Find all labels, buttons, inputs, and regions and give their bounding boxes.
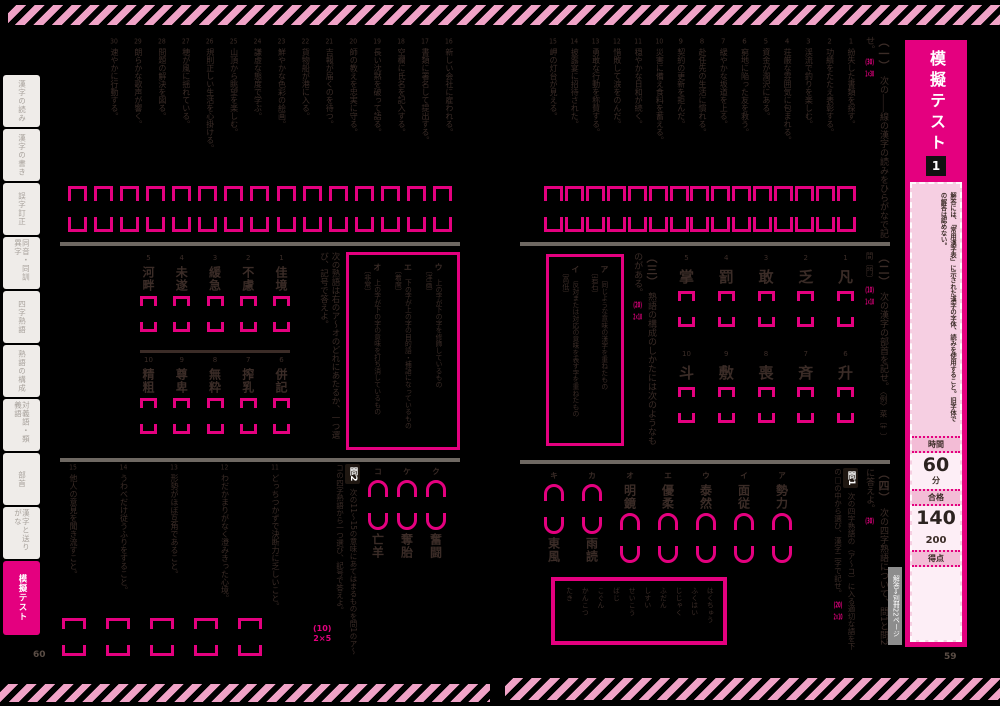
radical-cell: 9敷 — [718, 350, 735, 423]
question-column: 13勇敢な行動を称賛する。 — [587, 38, 601, 180]
question-column: 19長い沈黙を破って語る。 — [368, 38, 382, 180]
pass-total: 200 — [926, 535, 947, 546]
idiom-answer-box — [368, 480, 388, 530]
question-column: 25山頂から眺望を楽しむ。 — [225, 38, 239, 180]
question-column: 23鮮やかな色彩の絵画。 — [272, 38, 286, 180]
question-number: 1 — [843, 254, 847, 262]
section-score: (20) — [633, 301, 642, 309]
section-4-hint-box: はくちゅうふくはいじじゃくふだんしすいせいこうばじこぐんかんこつたき — [551, 577, 727, 645]
radical-kanji: 斉 — [798, 362, 813, 383]
time-number: 60 — [923, 454, 949, 476]
question-number: 12 — [613, 38, 621, 45]
question-text: 規則正しい生活を心掛ける。 — [206, 48, 215, 152]
idiom-answer-box — [426, 480, 446, 530]
hint-word: ふくはい — [689, 587, 699, 616]
left-page: 16新しい会社に雇われる。17書類に署名して提出する。18空欄に氏名を記入する。… — [60, 36, 460, 660]
section-score: (10) — [865, 286, 874, 294]
idiom-column: エ優柔 — [658, 470, 678, 570]
score-line: (10) — [313, 624, 331, 633]
question-number: 28 — [158, 38, 166, 45]
answer-box — [106, 618, 130, 656]
question-number: 3 — [213, 254, 217, 262]
compound-word: 併記 — [273, 368, 290, 394]
idiom-column: ク奮闘 — [426, 466, 446, 566]
answer-box — [407, 186, 426, 232]
question-column: 3渓流で釣りを楽しむ。 — [799, 38, 813, 180]
sidebar-tab-label: 熟語の構成 — [18, 350, 26, 393]
question-number: 9 — [180, 356, 184, 364]
question-text: 山頂から眺望を楽しむ。 — [230, 48, 239, 136]
radical-cell: 5掌 — [678, 254, 695, 327]
radical-cell: 2乏 — [797, 254, 814, 327]
page-number-right: 59 — [944, 652, 957, 662]
question-number: 10 — [655, 38, 663, 45]
q1-score: (20) — [834, 601, 843, 609]
section-1-answer-row — [544, 186, 856, 232]
question-column: 11穏やかな日和が続く。 — [629, 38, 643, 180]
radical-cell: 7斉 — [797, 350, 814, 423]
question-column: 26規則正しい生活を心掛ける。 — [201, 38, 215, 180]
hint-word: かんこつ — [579, 587, 589, 616]
sidebar-tab-label: 部首 — [18, 471, 26, 488]
question-number: 25 — [230, 38, 238, 45]
answer-box — [120, 186, 139, 232]
answer-box — [303, 186, 322, 232]
question-text: 速やかに行動する。 — [110, 48, 119, 120]
answer-box — [670, 186, 689, 232]
sidebar-tab-label: 同音・同訓異字 — [14, 239, 30, 287]
question-number: 13 — [592, 38, 600, 45]
hint-word: こぐん — [595, 587, 605, 609]
idiom-key: イ — [740, 470, 748, 481]
section-1-questions-continued: 16新しい会社に雇われる。17書類に署名して提出する。18空欄に氏名を記入する。… — [105, 38, 454, 180]
section-score: (30) — [865, 58, 874, 66]
option-column: エ 下の字が上の字の目的語・補語になっているもの〔着席〕 — [394, 263, 413, 439]
pass-number: 140 — [916, 507, 956, 529]
answer-box — [837, 186, 856, 232]
idiom-given: 雨読 — [584, 537, 601, 563]
idiom-column: ケ奪胎 — [397, 466, 417, 566]
question-number: 4 — [783, 38, 791, 45]
question-text: 災害に備え食料を蓄える。 — [655, 48, 664, 144]
question-number: 6 — [279, 356, 283, 364]
sidebar-tab: 同音・同訓異字 — [3, 237, 40, 289]
answer-box — [173, 398, 190, 434]
radical-cell: 1凡 — [837, 254, 854, 327]
section-4-idioms-h-j: ク奮闘ケ奪胎コ亡羊 — [368, 466, 446, 566]
question-number: 8 — [698, 38, 706, 45]
question-column: 2功績をたたえ表彰する。 — [821, 38, 835, 180]
section-score-per: 1×30 — [865, 70, 874, 78]
answer-box — [381, 186, 400, 232]
question-column: 21吉報が届くのを待つ。 — [320, 38, 334, 180]
answer-box — [628, 186, 647, 232]
question-text: 勇敢な行動を称賛する。 — [592, 48, 601, 136]
hint-word: せいこう — [626, 587, 636, 616]
section-instruction: 次の漢字の部首を記せ。 — [878, 292, 888, 391]
answer-box — [68, 186, 87, 232]
option-key: ア — [600, 265, 609, 281]
answer-box — [273, 296, 290, 332]
section-4-q2-answer-row — [62, 618, 262, 656]
question-text: 形勢がほぼ互角であること。 — [170, 474, 179, 578]
idiom-given: 勢力 — [774, 484, 791, 510]
idiom-given: 奪胎 — [399, 533, 416, 559]
section-divider — [520, 242, 890, 246]
sidebar-tab: 対義語・類義語 — [3, 399, 40, 451]
question-column: 10災害に備え食料を蓄える。 — [650, 38, 664, 180]
compound-word-cell: 10精粗 — [140, 356, 157, 434]
time-value: 60 分 — [912, 453, 960, 489]
question-number: 21 — [325, 38, 333, 45]
answer-box — [207, 398, 224, 434]
question-number: 16 — [445, 38, 453, 45]
section-2-row-2: 6升7斉8喪9敷10斗 — [678, 350, 854, 423]
question-number: 9 — [677, 38, 685, 45]
question-column: 4荘厳な雰囲気に包まれる。 — [778, 38, 792, 180]
idiom-answer-box — [772, 513, 792, 563]
answer-box — [837, 387, 854, 423]
compound-word: 佳境 — [273, 266, 290, 292]
question-number: 27 — [182, 38, 190, 45]
compound-word: 河畔 — [140, 266, 157, 292]
question-number: 4 — [180, 254, 184, 262]
question-text: 惜敗して涙をのんだ。 — [613, 48, 622, 128]
answer-box — [711, 186, 730, 232]
section-score-per: 2×10 — [633, 313, 642, 321]
question-column: 11どっちつかずで決断力に乏しいこと。 — [266, 464, 280, 614]
question-number: 12 — [221, 464, 229, 471]
answer-box — [774, 186, 793, 232]
radical-cell: 3敢 — [758, 254, 775, 327]
pass-value: 140 200 — [912, 506, 960, 550]
answer-box — [250, 186, 269, 232]
idiom-given: 亡羊 — [370, 533, 387, 559]
section-4-header: （四）次の四字熟語について、問1と問2に答えよ。(30) — [862, 468, 890, 652]
radical-kanji: 升 — [838, 362, 853, 383]
score-entry-space — [912, 567, 960, 640]
radical-cell: 10斗 — [678, 350, 695, 423]
sidebar-tab: 漢字の読み — [3, 75, 40, 127]
answer-box — [140, 398, 157, 434]
idiom-given: 東風 — [546, 537, 563, 563]
compound-word: 不慮 — [240, 266, 257, 292]
question-column: 12惜敗して涙をのんだ。 — [608, 38, 622, 180]
question-number: 7 — [804, 350, 808, 358]
option-key: エ — [403, 263, 412, 279]
question-column: 8赴任先の生活に慣れる。 — [693, 38, 707, 180]
answer-box — [198, 186, 217, 232]
sidebar-tab: 熟語の構成 — [3, 345, 40, 397]
answer-box — [678, 387, 695, 423]
question-column: 20師の教えを忠実に守る。 — [344, 38, 358, 180]
question-column: 15岬の灯台が見える。 — [544, 38, 558, 180]
question-column: 16新しい会社に雇われる。 — [440, 38, 454, 180]
hint-word: じじゃく — [673, 587, 683, 616]
answer-box — [329, 186, 348, 232]
q1-score-per: 2×10 — [834, 613, 843, 621]
question-number: 29 — [134, 38, 142, 45]
answer-box — [150, 618, 174, 656]
sidebar-index-tabs: 漢字の読み漢字の書き誤字訂正同音・同訓異字四字熟語熟語の構成対義語・類義語部首漢… — [3, 75, 40, 637]
option-example: 〔非常〕 — [363, 267, 372, 439]
section-2-row-1: 1凡2乏3敢4罰5掌 — [678, 254, 854, 327]
compound-word-cell: 9尊卑 — [173, 356, 190, 434]
question-column: 12わだかまりがなく澄みきった心境。 — [216, 464, 230, 614]
idiom-answer-box — [658, 513, 678, 563]
question-column: 1紛失した書類を探す。 — [842, 38, 856, 180]
question-text: 窮地に陥った友を救う。 — [741, 48, 750, 136]
compound-word-cell: 1佳境 — [273, 254, 290, 332]
radical-kanji: 喪 — [758, 362, 773, 383]
section-score-per: 1×10 — [865, 298, 874, 306]
option-key: オ — [373, 263, 382, 279]
compound-word-cell: 7搾乳 — [240, 356, 257, 434]
answer-box — [238, 618, 262, 656]
hint-word: たき — [564, 587, 574, 602]
question-text: 朗らかな歌声が響く。 — [134, 48, 143, 128]
answer-box — [240, 398, 257, 434]
question-text: 功績をたたえ表彰する。 — [826, 48, 835, 136]
section-4-q2-questions: 11どっちつかずで決断力に乏しいこと。12わだかまりがなく澄みきった心境。13形… — [64, 464, 280, 614]
question-number: 5 — [146, 254, 150, 262]
section-3-header: （三）熟語の構成のしかたには次のようなものがある。(20)2×10 — [626, 252, 658, 446]
sidebar-tab-label: 漢字と送りがな — [14, 509, 30, 557]
answer-box — [433, 186, 452, 232]
question-number: 2 — [246, 254, 250, 262]
idiom-column: ウ泰然 — [696, 470, 716, 570]
radical-cell: 6升 — [837, 350, 854, 423]
score-allocation: (10)2×5 — [313, 624, 331, 643]
radical-kanji: 罰 — [719, 266, 734, 287]
question-number: 14 — [570, 38, 578, 45]
question-text: 貨物船が港に入る。 — [301, 48, 310, 120]
question-text: 新しい会社に雇われる。 — [445, 48, 454, 136]
hint-word: ばじ — [611, 587, 621, 602]
answer-box — [544, 186, 563, 232]
question-column: 27穂が風に揺れている。 — [177, 38, 191, 180]
question-column: 6窮地に陥った友を救う。 — [736, 38, 750, 180]
radical-kanji: 凡 — [838, 266, 853, 287]
question-column: 9契約の更新を拒んだ。 — [672, 38, 686, 180]
section-number: （二） — [877, 252, 890, 288]
question-number: 5 — [684, 254, 688, 262]
idiom-answer-box — [397, 480, 417, 530]
idiom-answer-box — [734, 513, 754, 563]
section-3-row-1: 1佳境2不慮3緩急4未遂5河畔 — [140, 254, 290, 332]
option-column: イ 反対または対応の意味を表す字を重ねたもの〔高低〕 — [561, 265, 580, 435]
question-text: うわべだけ従うふりをすること。 — [120, 474, 129, 594]
test-banner: 模擬テスト 1 解答には、「常用漢字表」に示された漢字の字体、読みを使用すること… — [905, 40, 967, 647]
question-number: 5 — [762, 38, 770, 45]
question-number: 7 — [246, 356, 250, 364]
question-column: 24謙虚な態度で学ぶ。 — [249, 38, 263, 180]
option-example: 〔着席〕 — [394, 267, 403, 439]
question-number: 7 — [719, 38, 727, 45]
answer-box — [732, 186, 751, 232]
answer-box — [194, 618, 218, 656]
question-number: 8 — [213, 356, 217, 364]
question-number: 15 — [549, 38, 557, 45]
question-text: 穂が風に揺れている。 — [182, 48, 191, 128]
question-text: 緩やかな坂道を上る。 — [719, 48, 728, 128]
idiom-key: ク — [432, 466, 440, 477]
question-number: 17 — [421, 38, 429, 45]
sidebar-tab: 部首 — [3, 453, 40, 505]
option-column: ウ 上の字が下の字を修飾しているもの〔洋画〕 — [424, 263, 443, 439]
question-column: 5資金が潤沢にある。 — [757, 38, 771, 180]
answer-box — [565, 186, 584, 232]
question-number: 8 — [764, 350, 768, 358]
score-label: 得点 — [912, 550, 960, 567]
right-page: （一）次の――線の漢字の読みをひらがなで記せ。(30)1×301紛失した書類を探… — [520, 36, 890, 654]
section-4-q1-header: 問1次の四字熟語の（ア〜コ）に入る適切な語を下の□の中から選び、漢字二字で記せ。… — [812, 468, 858, 652]
q2-label: 問2 — [345, 464, 360, 484]
answer-box — [273, 398, 290, 434]
idiom-key: ア — [778, 470, 786, 481]
compound-word: 精粗 — [140, 368, 157, 394]
question-number: 26 — [206, 38, 214, 45]
idiom-key: エ — [664, 470, 672, 481]
sidebar-tab-label: 対義語・類義語 — [14, 401, 30, 449]
idiom-key: キ — [550, 470, 558, 481]
answer-reference: 解答⇒別冊22ページ — [888, 567, 902, 645]
banner-panel: 解答には、「常用漢字表」に示された漢字の字体、読みを使用すること。旧字体での解答… — [910, 182, 962, 642]
question-number: 23 — [277, 38, 285, 45]
section-3-options-box: ア 同じような意味の漢字を重ねたもの〔岩石〕イ 反対または対応の意味を表す字を重… — [546, 254, 624, 446]
section-1-header: （一）次の――線の漢字の読みをひらがなで記せ。(30)1×30 — [860, 36, 890, 241]
answer-box — [690, 186, 709, 232]
answer-box — [718, 291, 735, 327]
stripe-border-bottom-left — [0, 684, 490, 702]
compound-word: 尊卑 — [173, 368, 190, 394]
question-text: 鮮やかな色彩の絵画。 — [277, 48, 286, 128]
question-text: 問題の解決を図る。 — [158, 48, 167, 120]
section-score: (30) — [865, 517, 874, 525]
question-number: 4 — [724, 254, 728, 262]
question-column: 15他人の意見を聞き流すこと。 — [64, 464, 78, 614]
question-column: 17書類に署名して提出する。 — [416, 38, 430, 180]
section-instruction: 次の熟語は右のア〜オのどれにあたるか、一つ選び、記号で答えよ。 — [319, 252, 340, 439]
question-text: 書類に署名して提出する。 — [421, 48, 430, 144]
question-text: 師の教えを忠実に守る。 — [349, 48, 358, 136]
question-text: 空欄に氏名を記入する。 — [397, 48, 406, 136]
q1-label: 問1 — [843, 468, 858, 488]
question-number: 24 — [254, 38, 262, 45]
answer-box — [586, 186, 605, 232]
question-number: 19 — [373, 38, 381, 45]
section-divider — [60, 458, 460, 462]
compound-word: 無粋 — [207, 368, 224, 394]
compound-word-cell: 5河畔 — [140, 254, 157, 332]
idiom-given: 泰然 — [698, 484, 715, 510]
section-3-options-box-continued: ウ 上の字が下の字を修飾しているもの〔洋画〕エ 下の字が上の字の目的語・補語にな… — [346, 252, 460, 450]
compound-word: 未遂 — [173, 266, 190, 292]
question-text: 資金が潤沢にある。 — [762, 48, 771, 120]
idiom-answer-box — [582, 484, 602, 534]
idiom-column: イ面従 — [734, 470, 754, 570]
question-number: 3 — [764, 254, 768, 262]
idiom-answer-box — [544, 484, 564, 534]
sidebar-tab: 四字熟語 — [3, 291, 40, 343]
question-text: 荘厳な雰囲気に包まれる。 — [783, 48, 792, 144]
answer-box — [758, 387, 775, 423]
sidebar-tab-label: 模擬テスト — [17, 574, 26, 622]
question-text: どっちつかずで決断力に乏しいこと。 — [271, 474, 280, 610]
question-text: 他人の意見を聞き流すこと。 — [69, 474, 78, 578]
option-key: ウ — [434, 263, 443, 279]
option-example: 〔岩石〕 — [590, 269, 599, 435]
question-text: 穏やかな日和が続く。 — [634, 48, 643, 128]
answer-box — [797, 291, 814, 327]
section-divider — [60, 242, 460, 246]
answer-box — [172, 186, 191, 232]
question-column: 22貨物船が港に入る。 — [296, 38, 310, 180]
stripe-border-top — [8, 5, 1000, 25]
time-label: 時間 — [912, 436, 960, 453]
question-number: 1 — [847, 38, 855, 45]
answer-box — [355, 186, 374, 232]
answer-box — [94, 186, 113, 232]
idiom-column: キ東風 — [544, 470, 564, 570]
section-number: （三） — [645, 252, 658, 288]
radical-kanji: 乏 — [798, 266, 813, 287]
question-number: 30 — [110, 38, 118, 45]
answer-box — [62, 618, 86, 656]
answer-box — [797, 387, 814, 423]
answer-box — [649, 186, 668, 232]
compound-word: 搾乳 — [240, 368, 257, 394]
answer-box — [607, 186, 626, 232]
section-2-header: （二）次の漢字の部首を記せ。〈例〉菜〔艹〕間〔門〕(10)1×10 — [860, 252, 890, 446]
section-number: （四） — [877, 468, 890, 504]
question-column: 14披露宴に招待された。 — [565, 38, 579, 180]
question-column: 18空欄に氏名を記入する。 — [392, 38, 406, 180]
sidebar-tab: 誤字訂正 — [3, 183, 40, 235]
idiom-key: ウ — [702, 470, 710, 481]
question-column: 29朗らかな歌声が響く。 — [129, 38, 143, 180]
answer-box — [207, 296, 224, 332]
idiom-column: カ雨読 — [582, 470, 602, 570]
question-text: 渓流で釣りを楽しむ。 — [804, 48, 813, 128]
option-example: 〔高低〕 — [561, 269, 570, 435]
section-4-idioms-a-g: ア勢力イ面従ウ泰然エ優柔オ明鏡カ雨読キ東風 — [544, 470, 792, 570]
question-number: 9 — [724, 350, 728, 358]
idiom-column: オ明鏡 — [620, 470, 640, 570]
section-1-answer-row-continued — [68, 186, 452, 232]
radical-cell: 4罰 — [718, 254, 735, 327]
q2-instruction: 次の11〜15の意味にあてはまるものを問1のア〜コの四字熟語から一つ選び、記号で… — [336, 464, 358, 655]
option-column: オ 上の字が下の字の意味を打ち消しているもの〔非常〕 — [363, 263, 382, 439]
answer-box — [678, 291, 695, 327]
compound-word-cell: 3緩急 — [207, 254, 224, 332]
answer-box — [224, 186, 243, 232]
banner-number-badge: 1 — [926, 156, 946, 176]
answer-box — [140, 296, 157, 332]
idiom-answer-box — [696, 513, 716, 563]
question-text: わだかまりがなく澄みきった心境。 — [221, 474, 230, 602]
section-divider — [520, 460, 890, 464]
sidebar-tab-label: 誤字訂正 — [18, 192, 26, 226]
section-3-row-2: 6併記7搾乳8無粋9尊卑10精粗 — [140, 356, 290, 434]
radical-kanji: 掌 — [679, 266, 694, 287]
stripe-border-bottom-right — [505, 678, 1000, 700]
idiom-answer-box — [620, 513, 640, 563]
sidebar-tab-label: 四字熟語 — [18, 300, 26, 334]
answer-box — [173, 296, 190, 332]
question-number: 15 — [69, 464, 77, 471]
answer-box — [795, 186, 814, 232]
